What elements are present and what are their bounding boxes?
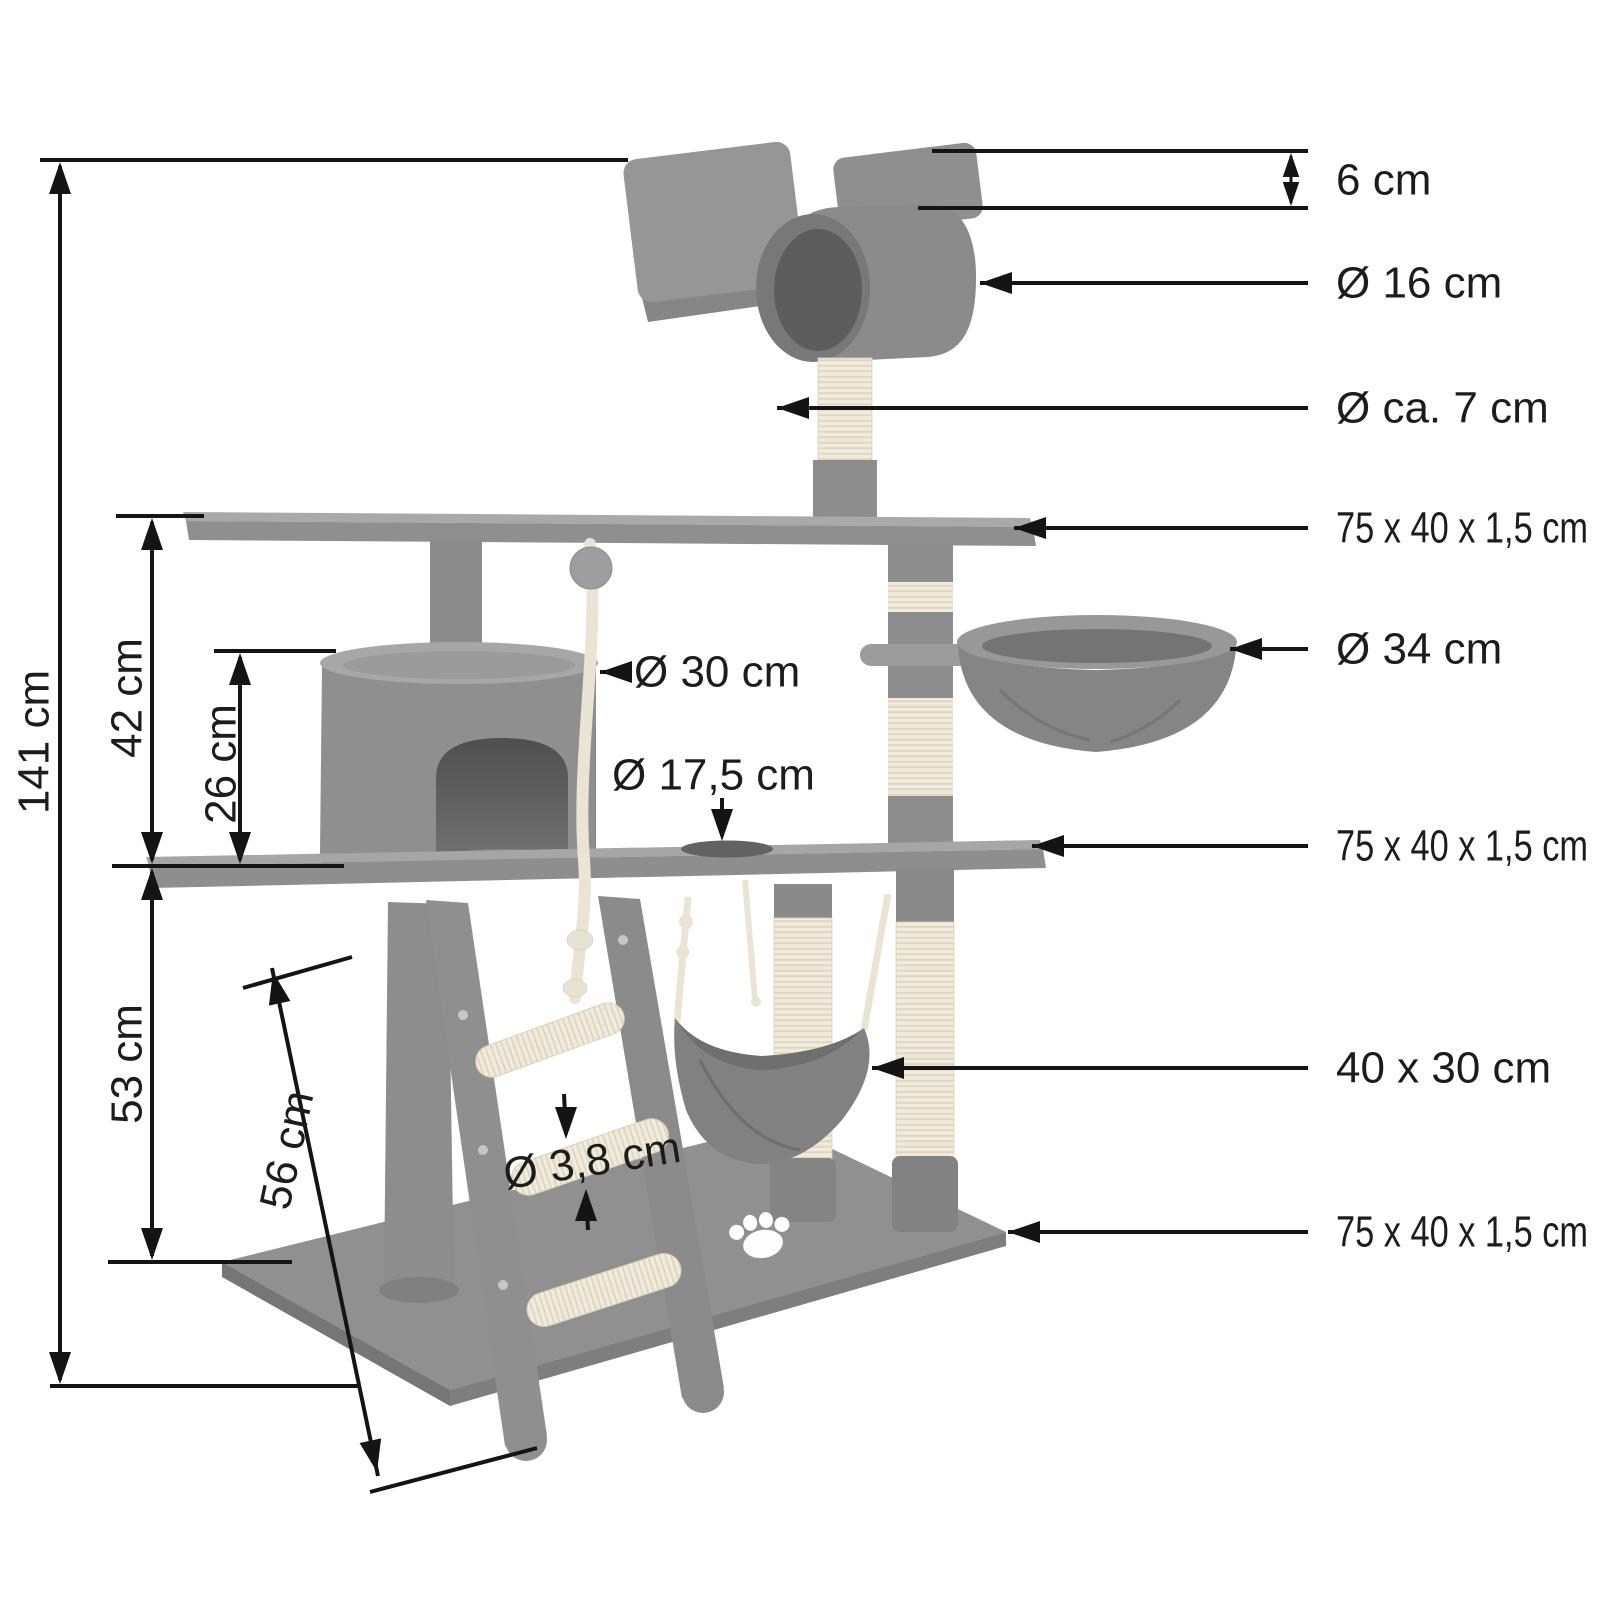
label-hammock: 40 x 30 cm (1336, 1044, 1551, 1093)
label-basket-diameter: Ø 34 cm (1336, 625, 1502, 674)
label-base-board: 75 x 40 x 1,5 cm (1336, 1208, 1588, 1257)
cat-house (320, 642, 598, 874)
house-post (430, 540, 482, 658)
tunnel-post (813, 358, 877, 518)
rope-ball (570, 547, 612, 589)
dim-house-diameter (600, 661, 632, 683)
label-base-depth: 56 cm (251, 1086, 324, 1213)
cat-tree-illustration (146, 140, 1237, 1461)
label-post-diameter: Ø ca. 7 cm (1336, 384, 1549, 433)
label-house-height: 26 cm (197, 704, 246, 824)
dim-hole-diameter (711, 798, 733, 841)
label-platform-thickness: 6 cm (1336, 156, 1431, 205)
label-lower-section: 53 cm (103, 1004, 152, 1124)
dim-base-board (1008, 1221, 1308, 1243)
striped-post (888, 542, 953, 846)
diagram-canvas: 141 cm 42 cm 26 cm 53 cm 56 cm 6 cm Ø 16… (0, 0, 1600, 1600)
ladder-rung (471, 998, 629, 1081)
house-door (436, 738, 568, 862)
label-middle-shelf: 75 x 40 x 1,5 cm (1336, 822, 1588, 871)
label-house-diameter: Ø 30 cm (634, 648, 800, 697)
dim-middle-shelf (1032, 835, 1308, 857)
dim-top-shelf (1014, 517, 1308, 539)
label-hole-diameter: Ø 17,5 cm (612, 751, 815, 800)
hammock (674, 1018, 869, 1164)
tunnel (756, 204, 976, 362)
label-tunnel-diameter: Ø 16 cm (1336, 259, 1502, 308)
cat-tree-diagram-svg: 141 cm 42 cm 26 cm 53 cm 56 cm 6 cm Ø 16… (0, 0, 1600, 1600)
dim-basket-diameter (1230, 638, 1308, 660)
label-top-shelf: 75 x 40 x 1,5 cm (1336, 504, 1588, 553)
shelf-hole (681, 841, 773, 858)
label-upper-section: 42 cm (103, 638, 152, 758)
dim-tunnel-diameter (980, 272, 1308, 294)
top-shelf (183, 512, 1036, 546)
label-total-height: 141 cm (10, 670, 59, 814)
